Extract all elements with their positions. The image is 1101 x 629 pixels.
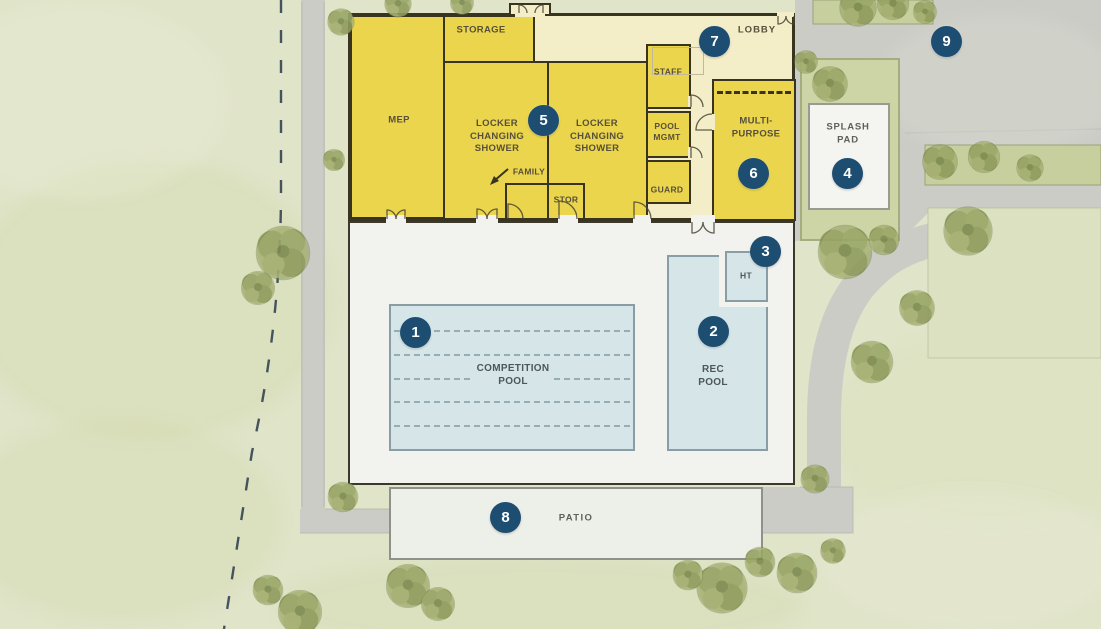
door-gap — [633, 215, 651, 226]
tree-icon — [923, 145, 958, 180]
property-line — [224, 0, 281, 629]
door-gap — [558, 215, 578, 226]
tree-icon — [257, 227, 310, 280]
tree-icon — [279, 591, 322, 629]
room-multi-purpose — [712, 79, 796, 221]
operable-partition — [717, 91, 791, 94]
door-gap — [688, 147, 693, 158]
tree-icon — [968, 141, 999, 172]
door-gap — [688, 96, 693, 107]
tree-icon — [328, 482, 358, 512]
room-label-staff: STAFF — [654, 66, 682, 77]
tree-icon — [697, 563, 747, 613]
label-hot-tub: HT — [740, 270, 752, 281]
west-sidewalk — [301, 0, 325, 516]
room-label-storage: STORAGE — [457, 25, 506, 38]
lane-line — [394, 354, 630, 356]
tree-icon — [387, 565, 430, 608]
room-label-stor: STOR — [554, 194, 579, 205]
door-gap — [691, 215, 715, 228]
label-patio: PATIO — [559, 513, 594, 526]
tree-icon — [877, 0, 908, 20]
door-gap — [711, 114, 715, 130]
label-splash-pad: SPLASH PAD — [826, 121, 869, 146]
north-hedge-bed — [813, 0, 933, 24]
tree-icon — [801, 465, 829, 493]
pavement-joint — [905, 129, 1101, 133]
tree-icon — [323, 149, 344, 170]
lawn-panel — [928, 208, 1101, 358]
marker-6: 6 — [738, 158, 769, 189]
tree-icon — [242, 272, 275, 305]
tree-icon — [821, 539, 846, 564]
marker-5: 5 — [528, 105, 559, 136]
room-label-pool-mgmt: POOL MGMT — [653, 121, 680, 143]
room-label-lobby: LOBBY — [738, 25, 776, 38]
room-label-locker-right: LOCKER CHANGING SHOWER — [570, 118, 624, 156]
room-storage — [443, 15, 535, 63]
tree-icon — [253, 575, 283, 605]
room-label-mep: MEP — [388, 115, 410, 128]
tree-icon — [1017, 155, 1043, 181]
door-gap — [777, 12, 794, 17]
label-competition-pool: COMPETITION POOL — [473, 361, 554, 389]
site-plan: MEP STORAGE LOCKER CHANGING SHOWER LOCKE… — [0, 0, 1101, 629]
door-gap — [386, 215, 406, 226]
marker-9: 9 — [931, 26, 962, 57]
room-label-family: FAMILY — [513, 166, 545, 177]
tree-icon — [851, 341, 892, 382]
label-rec-pool: REC POOL — [698, 363, 728, 389]
east-walkway — [824, 240, 932, 505]
door-gap — [476, 215, 498, 226]
room-family — [505, 183, 550, 220]
room-label-multi-purpose: MULTI- PURPOSE — [732, 115, 781, 140]
marker-3: 3 — [750, 236, 781, 267]
marker-1: 1 — [400, 317, 431, 348]
lane-line — [394, 401, 630, 403]
east-hedge-bed — [925, 145, 1101, 185]
splash-pad — [808, 103, 890, 210]
room-guard — [646, 160, 691, 204]
door-gap — [515, 12, 545, 17]
marker-8: 8 — [490, 502, 521, 533]
tree-icon — [673, 560, 703, 590]
west-sidewalk-edges — [302, 2, 324, 507]
tree-icon — [900, 291, 935, 326]
tree-icon — [777, 553, 817, 593]
room-label-locker-left: LOCKER CHANGING SHOWER — [470, 118, 524, 156]
marker-2: 2 — [698, 316, 729, 347]
tree-icon — [944, 207, 992, 255]
room-label-guard: GUARD — [651, 184, 684, 195]
marker-4: 4 — [832, 158, 863, 189]
rear-corridor — [648, 203, 690, 218]
tree-icon — [840, 0, 876, 26]
tree-icon — [422, 588, 455, 621]
tree-icon — [913, 0, 936, 23]
marker-7: 7 — [699, 26, 730, 57]
lane-line — [394, 425, 630, 427]
